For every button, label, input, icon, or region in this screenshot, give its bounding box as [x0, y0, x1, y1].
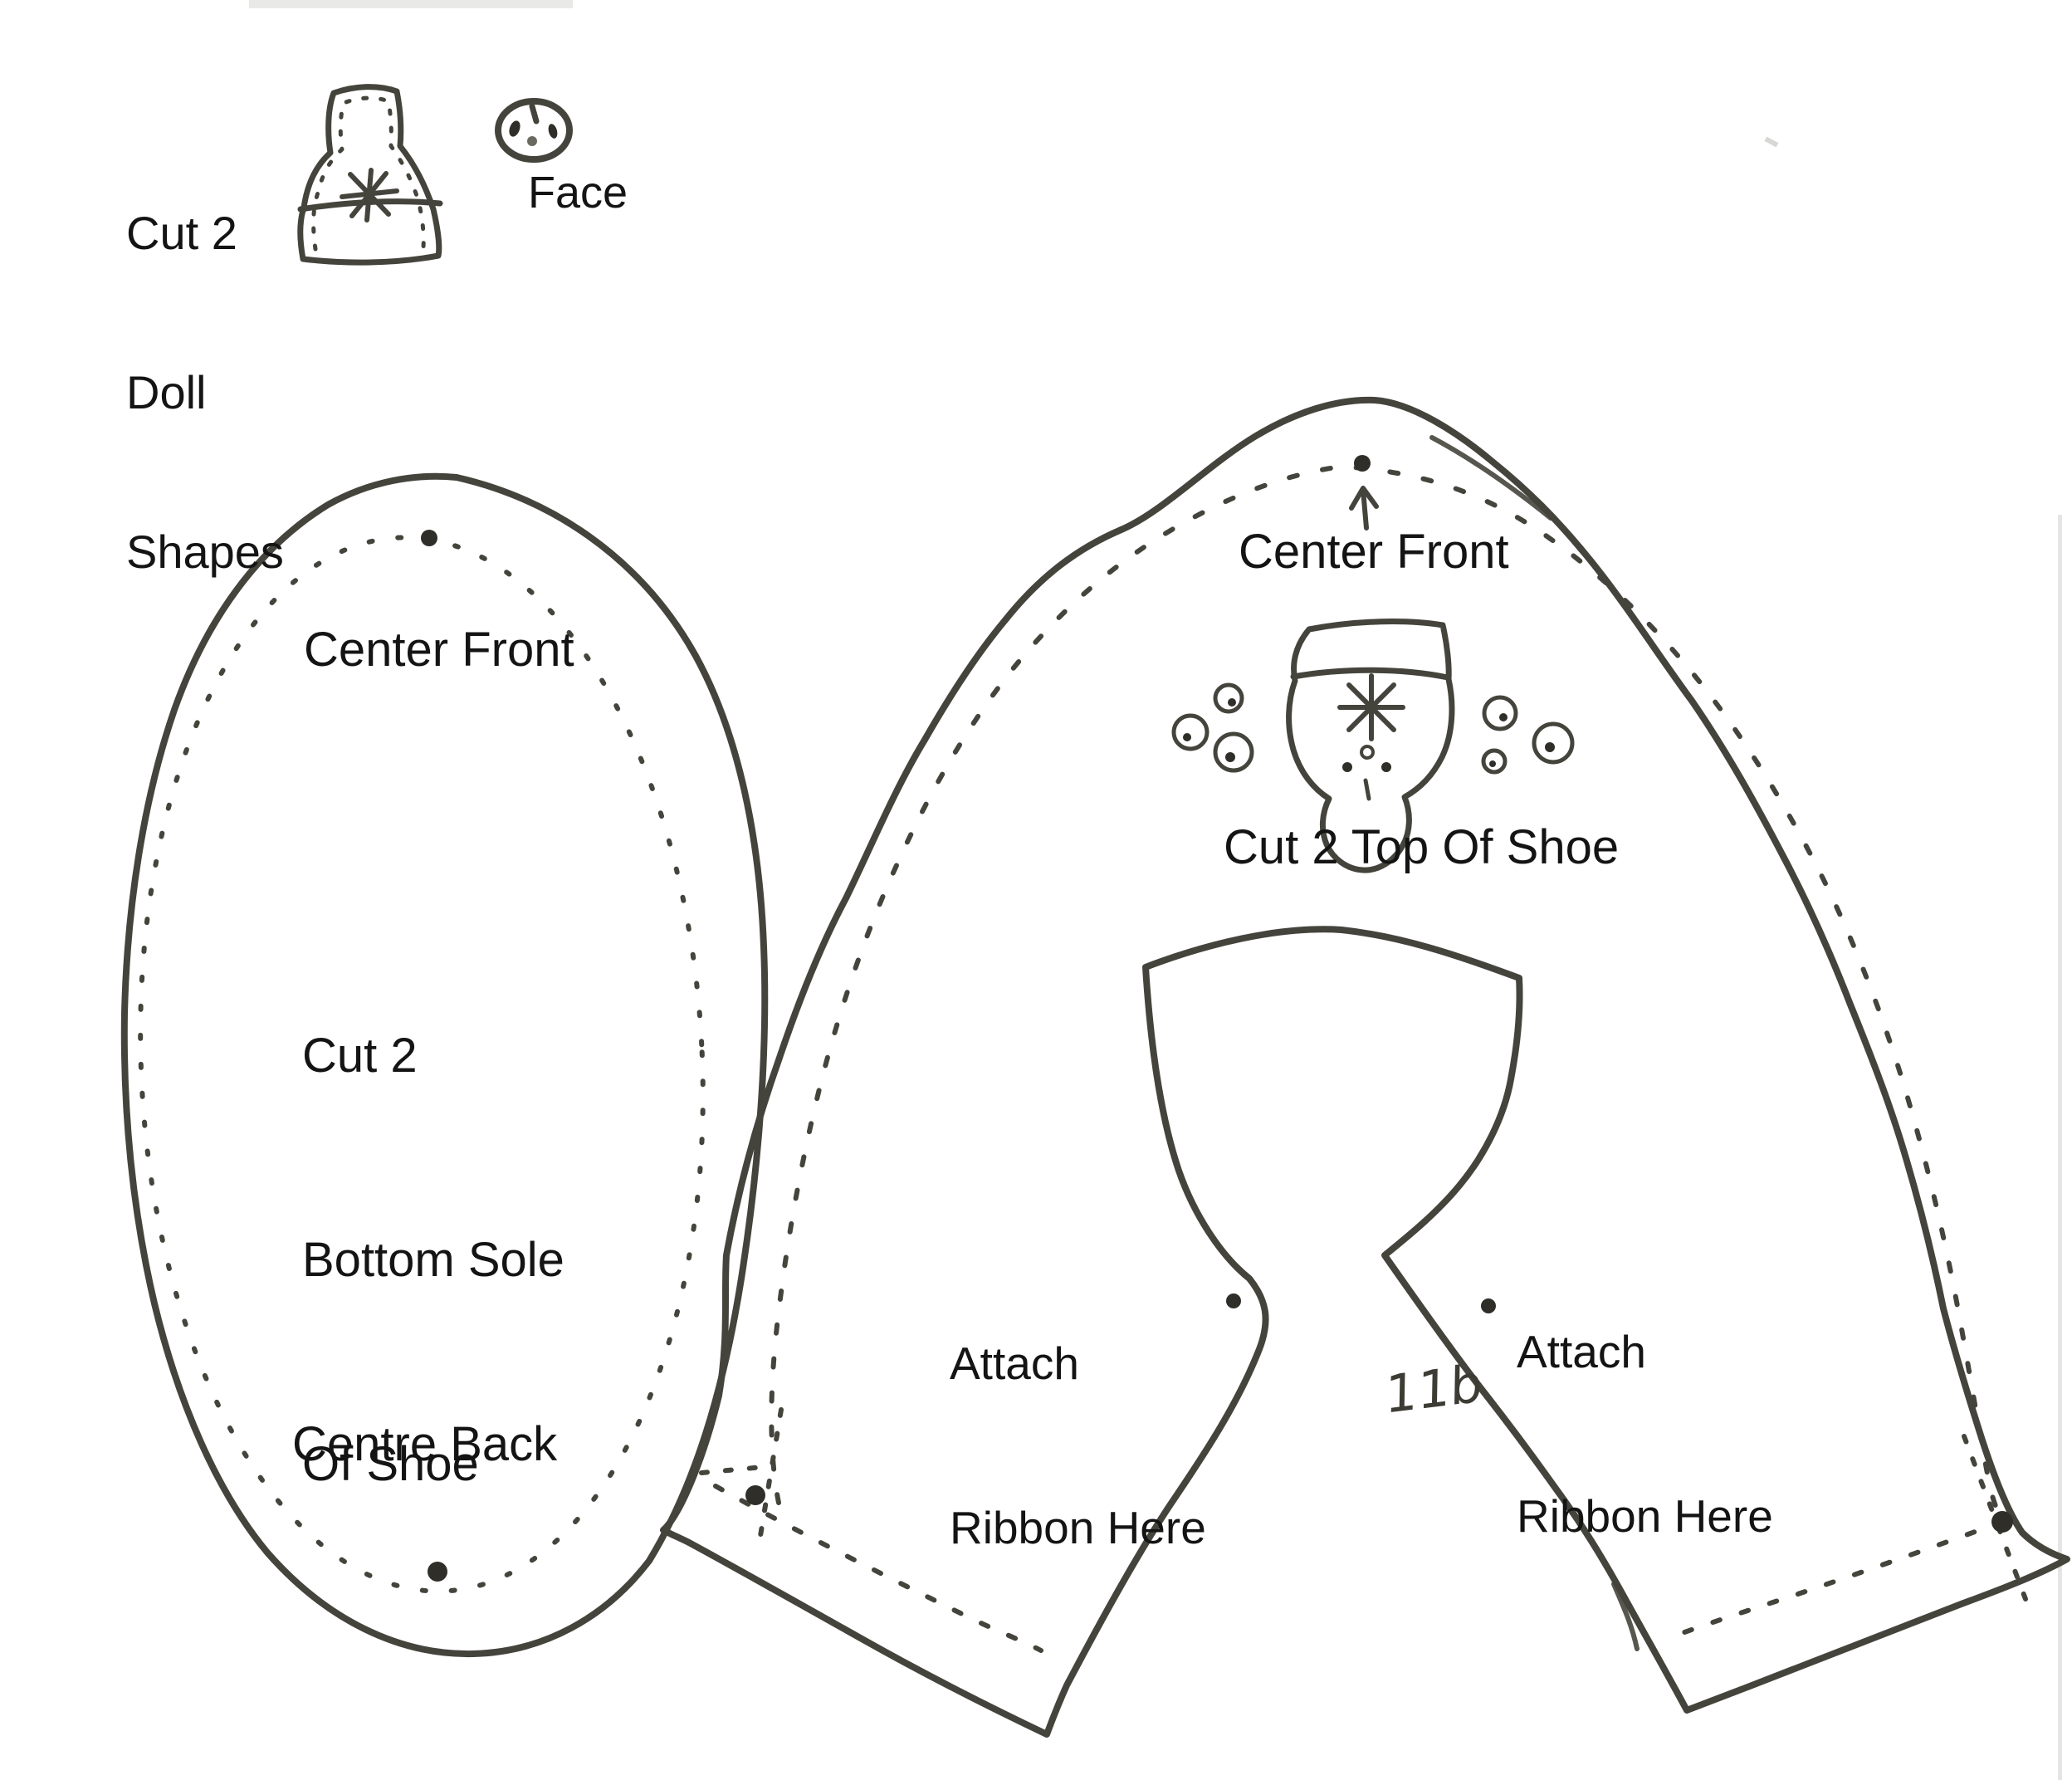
- face-label: Face: [528, 168, 628, 218]
- doll-motif-right-eye: [1381, 762, 1391, 772]
- face-nose-dot: [527, 136, 537, 146]
- sole-cut-label: Cut 2 Bottom Sole Of Shoe: [302, 886, 564, 1635]
- scan-edge-right: [2058, 515, 2062, 1780]
- asterisk-stroke: [367, 170, 371, 220]
- swirl-center: [1225, 752, 1235, 762]
- scan-edge-top: [249, 0, 573, 8]
- asterisk-mark-large: [1340, 676, 1403, 739]
- swirl-circle: [1174, 716, 1207, 749]
- doll-motif-nose: [1361, 746, 1373, 758]
- shoe-top-center-front-label: Center Front: [1239, 526, 1509, 579]
- attach-ribbon-left-line1: Attach: [950, 1336, 1206, 1391]
- sole-cut-label-line1: Cut 2: [302, 1022, 564, 1090]
- swirl-center: [1228, 698, 1236, 707]
- swirl-center: [1489, 760, 1496, 767]
- doll-shapes-label-line3: Shapes: [126, 526, 284, 579]
- up-arrow: [1351, 488, 1376, 528]
- swirl-center: [1183, 733, 1191, 741]
- page-number-handwritten: 11b: [1385, 1357, 1483, 1421]
- doll-shapes-label-line1: Cut 2: [126, 207, 284, 260]
- scanned-pattern-page: Cut 2 Doll Shapes Face Center Front Cut …: [0, 0, 2072, 1780]
- attach-ribbon-right-line1: Attach: [1517, 1324, 1773, 1379]
- doll-motif-mouth: [1366, 780, 1369, 799]
- face-top-notch: [532, 106, 536, 121]
- attach-ribbon-right-line2: Ribbon Here: [1517, 1489, 1773, 1543]
- face-right-eye: [547, 123, 559, 139]
- shoe-top-cut-label: Cut 2 Top Of Shoe: [1224, 821, 1619, 874]
- doll-shape-mini: [301, 87, 440, 263]
- attach-ribbon-left-dot: [1226, 1293, 1241, 1308]
- swirl-center: [1545, 742, 1555, 752]
- left-leg-cross-mark-2: [701, 1466, 772, 1473]
- attach-ribbon-left-label: Attach Ribbon Here: [950, 1226, 1206, 1665]
- attach-ribbon-right-dot: [1481, 1298, 1496, 1313]
- swirl-center: [1499, 713, 1508, 721]
- right-leg-corner-dot: [1991, 1511, 2013, 1533]
- attach-ribbon-right-label: Attach Ribbon Here: [1517, 1215, 1773, 1653]
- asterisk-mark: [342, 170, 397, 220]
- doll-motif-left-eye: [1342, 762, 1352, 772]
- face-shape-mini: [498, 101, 569, 159]
- sole-center-front-dot: [421, 530, 437, 546]
- doll-shapes-label: Cut 2 Doll Shapes: [126, 100, 284, 685]
- swirl-circle: [1215, 685, 1242, 712]
- center-front-dot: [1354, 455, 1371, 472]
- face-left-eye: [507, 120, 522, 139]
- doll-shapes-label-line2: Doll: [126, 366, 284, 419]
- attach-ribbon-left-line2: Ribbon Here: [950, 1500, 1206, 1555]
- sole-centre-back-label: Centre Back: [292, 1418, 557, 1471]
- sole-center-front-label: Center Front: [304, 623, 574, 677]
- swirl-circle: [1534, 724, 1572, 762]
- shoe-top-outline: [663, 400, 2067, 1734]
- sole-cut-label-line2: Bottom Sole: [302, 1226, 564, 1294]
- left-leg-corner-dot: [745, 1485, 765, 1505]
- swirl-circle: [1484, 697, 1516, 729]
- scan-speck: [1765, 137, 1779, 148]
- shoe-top-piece: [663, 400, 2067, 1734]
- swirl-circle: [1215, 734, 1252, 770]
